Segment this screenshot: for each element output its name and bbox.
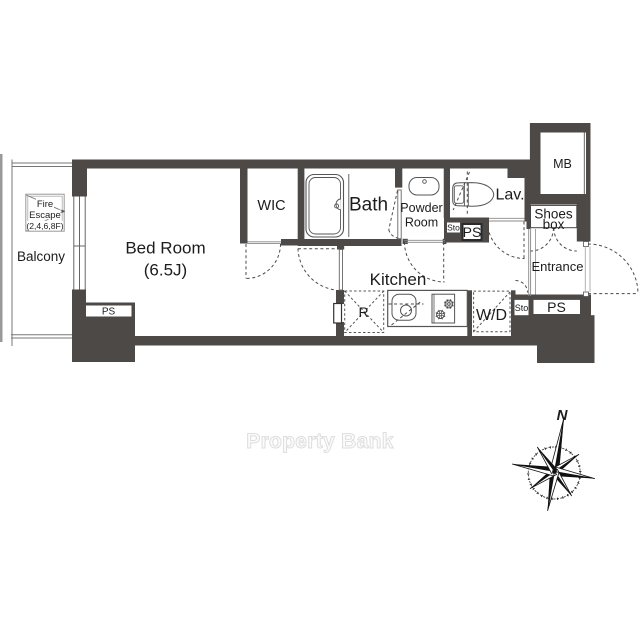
svg-text:PS: PS xyxy=(463,224,482,240)
svg-text:W/D: W/D xyxy=(476,307,507,324)
svg-text:Entrance: Entrance xyxy=(531,259,583,274)
svg-text:Bed Room: Bed Room xyxy=(125,239,205,258)
svg-text:Lav.: Lav. xyxy=(495,187,524,204)
svg-text:Powder: Powder xyxy=(400,201,442,215)
svg-text:Escape: Escape xyxy=(29,210,61,221)
svg-text:Property Bank: Property Bank xyxy=(246,430,393,453)
svg-text:Kitchen: Kitchen xyxy=(370,270,427,289)
svg-text:box: box xyxy=(543,217,565,232)
svg-text:WIC: WIC xyxy=(257,198,285,214)
svg-text:(2,4,6,8F): (2,4,6,8F) xyxy=(26,221,63,231)
svg-text:Sto: Sto xyxy=(447,223,460,233)
svg-text:PS: PS xyxy=(102,307,116,318)
svg-text:Bath: Bath xyxy=(349,195,388,216)
svg-text:R: R xyxy=(358,304,368,320)
svg-text:Room: Room xyxy=(405,216,438,230)
svg-text:MB: MB xyxy=(553,157,572,171)
svg-text:Fire: Fire xyxy=(37,199,53,210)
svg-text:Balcony: Balcony xyxy=(17,249,65,264)
svg-text:(6.5J): (6.5J) xyxy=(144,261,187,280)
svg-text:PS: PS xyxy=(547,299,566,315)
svg-text:N: N xyxy=(557,407,569,424)
svg-text:Sto: Sto xyxy=(515,303,529,313)
